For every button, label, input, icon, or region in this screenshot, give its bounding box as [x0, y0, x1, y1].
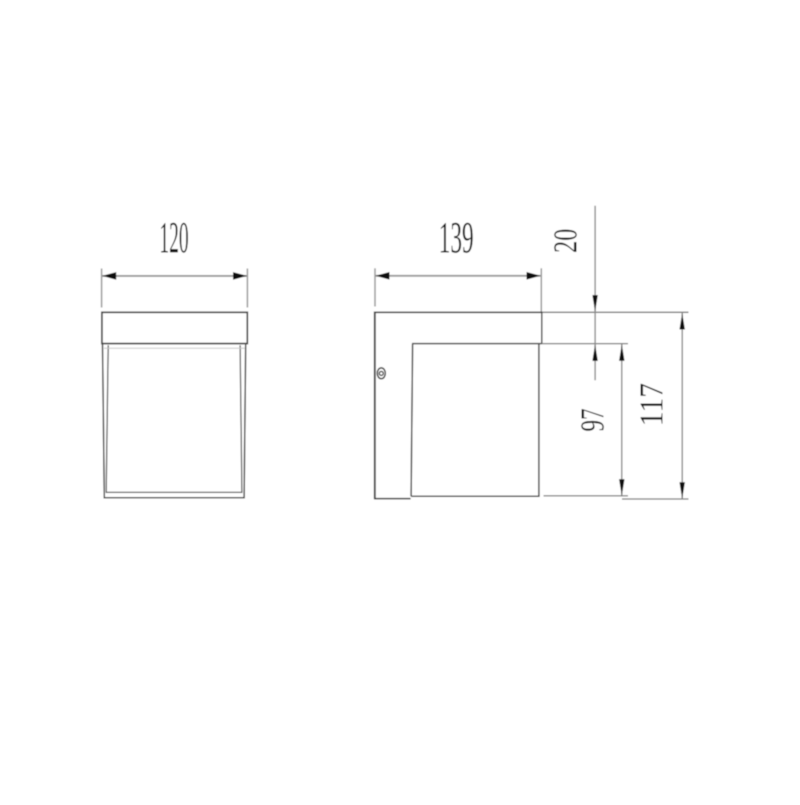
- svg-text:97: 97: [574, 408, 611, 431]
- svg-text:139: 139: [439, 213, 474, 262]
- svg-text:117: 117: [633, 383, 670, 426]
- svg-text:120: 120: [159, 215, 188, 263]
- svg-text:20: 20: [548, 229, 585, 253]
